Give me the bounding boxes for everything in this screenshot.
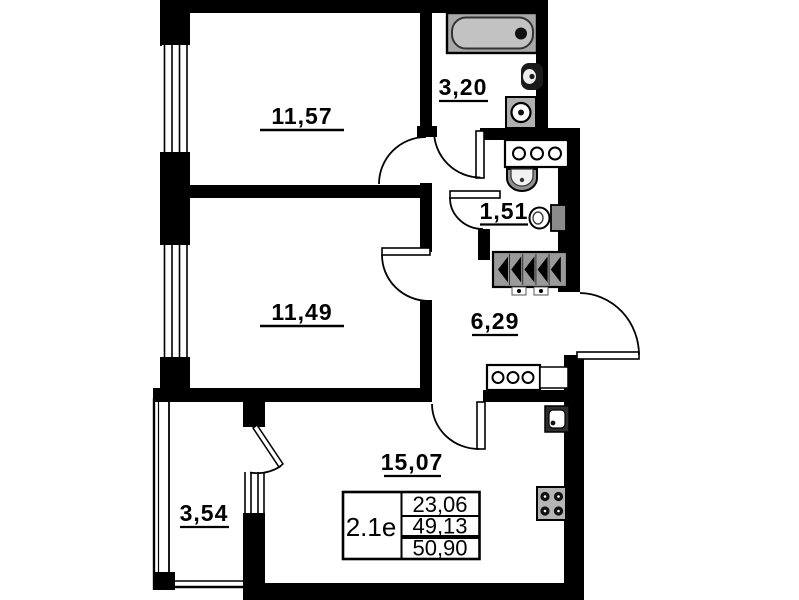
window-bedroom-middle xyxy=(162,245,190,357)
bathtub xyxy=(447,13,537,53)
vent-dot xyxy=(539,289,543,293)
area-label-wc: 1,51 xyxy=(480,198,529,224)
wall-rooms-right-a xyxy=(420,13,432,137)
area-label-bathroom: 3,20 xyxy=(439,74,488,100)
door-leaf-entrance xyxy=(577,352,639,359)
area-label-bedroom-middle: 11,49 xyxy=(271,299,332,325)
hall-counter xyxy=(487,365,568,390)
wall-left-mid-block xyxy=(160,152,190,245)
window-glass xyxy=(162,245,190,357)
window-bedroom-top xyxy=(162,45,190,152)
door-leaf-wc xyxy=(450,191,500,198)
counter-ring xyxy=(513,148,525,160)
wall-kitchen-top-right xyxy=(483,390,568,402)
area-label-kitchen: 15,07 xyxy=(381,449,444,475)
washbasin-drain xyxy=(520,178,524,182)
wc-washbasin xyxy=(507,169,537,191)
door-leaf-bathroom xyxy=(476,131,484,178)
wall-balcony-divider-bottom xyxy=(243,513,265,588)
area-label-hallway: 6,29 xyxy=(471,308,520,334)
wall-balcony-divider-top xyxy=(243,400,265,427)
counter-ring xyxy=(508,372,519,383)
counter-side-box xyxy=(540,367,568,388)
balcony-glazing xyxy=(153,398,246,590)
floor-plan: 11,57 11,49 3,20 1,51 6,29 15,07 3,54 2.… xyxy=(0,0,799,600)
door-arc-bathroom xyxy=(434,131,481,178)
wall-bathroom-bottom xyxy=(480,128,580,140)
kitchen-sink xyxy=(545,406,569,432)
door-arc-kitchen xyxy=(432,404,479,449)
stove-burner-dot xyxy=(544,510,547,513)
stove-burner-dot xyxy=(557,495,560,498)
stove-top xyxy=(537,487,566,520)
sink-basin xyxy=(549,410,565,428)
wall-kitchen-top-left xyxy=(153,388,432,402)
door-arc-bedroom-middle xyxy=(382,255,428,301)
wall-left-top-block xyxy=(160,0,190,46)
vent-dot xyxy=(517,289,521,293)
counter-ring xyxy=(523,372,534,383)
wall-top xyxy=(160,0,548,13)
stove xyxy=(537,487,566,520)
wall-rooms-right-c xyxy=(420,300,432,392)
window-balcony-divider xyxy=(245,472,264,513)
window-glass xyxy=(162,45,190,152)
stove-burner-dot xyxy=(544,495,547,498)
counter-ring xyxy=(549,148,561,160)
wall-room-divider xyxy=(185,185,432,198)
door-arc-entrance xyxy=(580,293,639,355)
area-label-balcony: 3,54 xyxy=(180,500,229,526)
sink-drain xyxy=(518,110,524,116)
bathtub-drain xyxy=(515,28,527,40)
toilet-tank xyxy=(551,205,566,231)
toilet-drain xyxy=(529,74,534,79)
washbasin-bowl xyxy=(511,169,533,186)
bathroom-sink xyxy=(506,97,536,128)
counter-ring xyxy=(493,372,504,383)
door-leaf-balcony xyxy=(253,425,283,467)
counter-3-rings xyxy=(505,140,568,167)
area-label-bedroom-top: 11,57 xyxy=(271,103,332,129)
sink-drain xyxy=(551,421,556,426)
door-leaf-kitchen xyxy=(477,402,485,449)
ventilation-shaft xyxy=(493,252,567,295)
door-arc-wc xyxy=(450,198,483,229)
door-arc-balcony xyxy=(250,466,281,473)
wc-toilet xyxy=(530,205,567,231)
bathroom-toilet xyxy=(521,63,543,90)
wall-rooms-right-b xyxy=(420,183,432,252)
door-arc-bedroom-top xyxy=(379,137,426,184)
counter-ring xyxy=(531,148,543,160)
unit-type-label: 2.1е xyxy=(346,512,397,542)
stove-burner-dot xyxy=(557,510,560,513)
wall-wc-left xyxy=(478,229,490,260)
door-leaf-bedroom-middle xyxy=(382,248,430,255)
wall-bottom xyxy=(243,583,584,600)
total-area-value: 50,90 xyxy=(412,536,467,561)
unit-info-table: 2.1е 23,06 49,13 50,90 xyxy=(343,492,480,561)
